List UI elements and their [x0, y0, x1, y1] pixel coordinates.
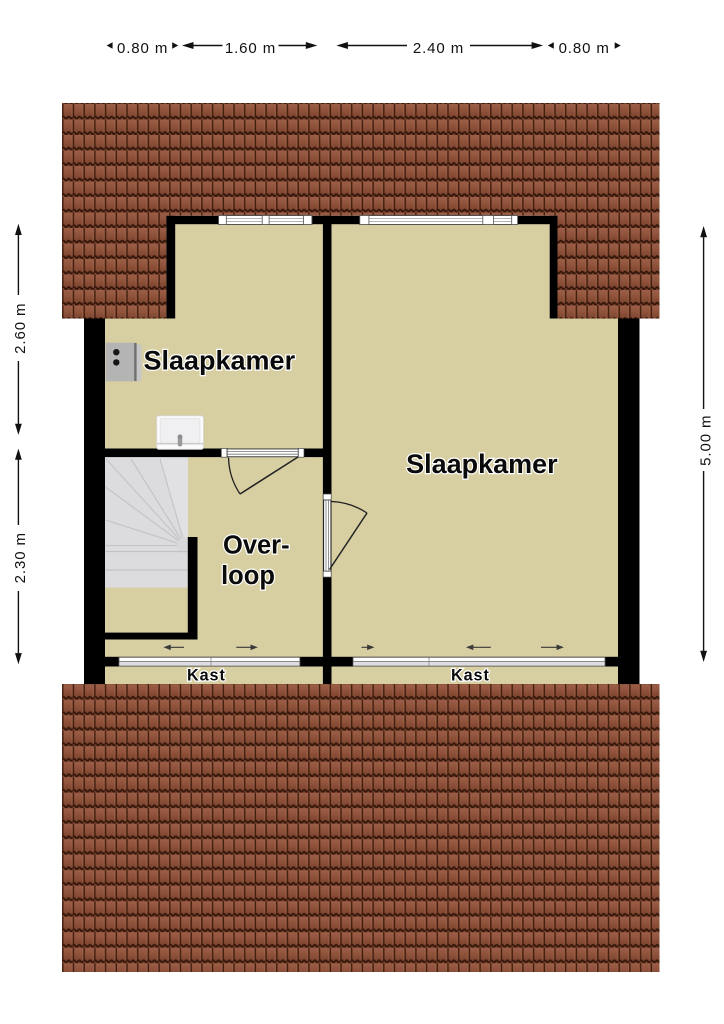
svg-text:Slaapkamer: Slaapkamer — [143, 346, 295, 376]
svg-text:Kast: Kast — [187, 666, 226, 684]
svg-text:2.30 m: 2.30 m — [12, 532, 29, 583]
svg-text:5.00 m: 5.00 m — [698, 415, 715, 466]
svg-text:2.60 m: 2.60 m — [12, 303, 29, 354]
svg-text:1.60 m: 1.60 m — [225, 40, 276, 57]
svg-text:Kast: Kast — [451, 666, 490, 684]
svg-text:loop: loop — [221, 562, 275, 590]
svg-text:Slaapkamer: Slaapkamer — [406, 449, 558, 479]
svg-text:Over-: Over- — [223, 532, 290, 560]
svg-text:0.80 m: 0.80 m — [117, 40, 168, 57]
svg-text:2.40 m: 2.40 m — [413, 40, 464, 57]
svg-text:0.80 m: 0.80 m — [559, 40, 610, 57]
